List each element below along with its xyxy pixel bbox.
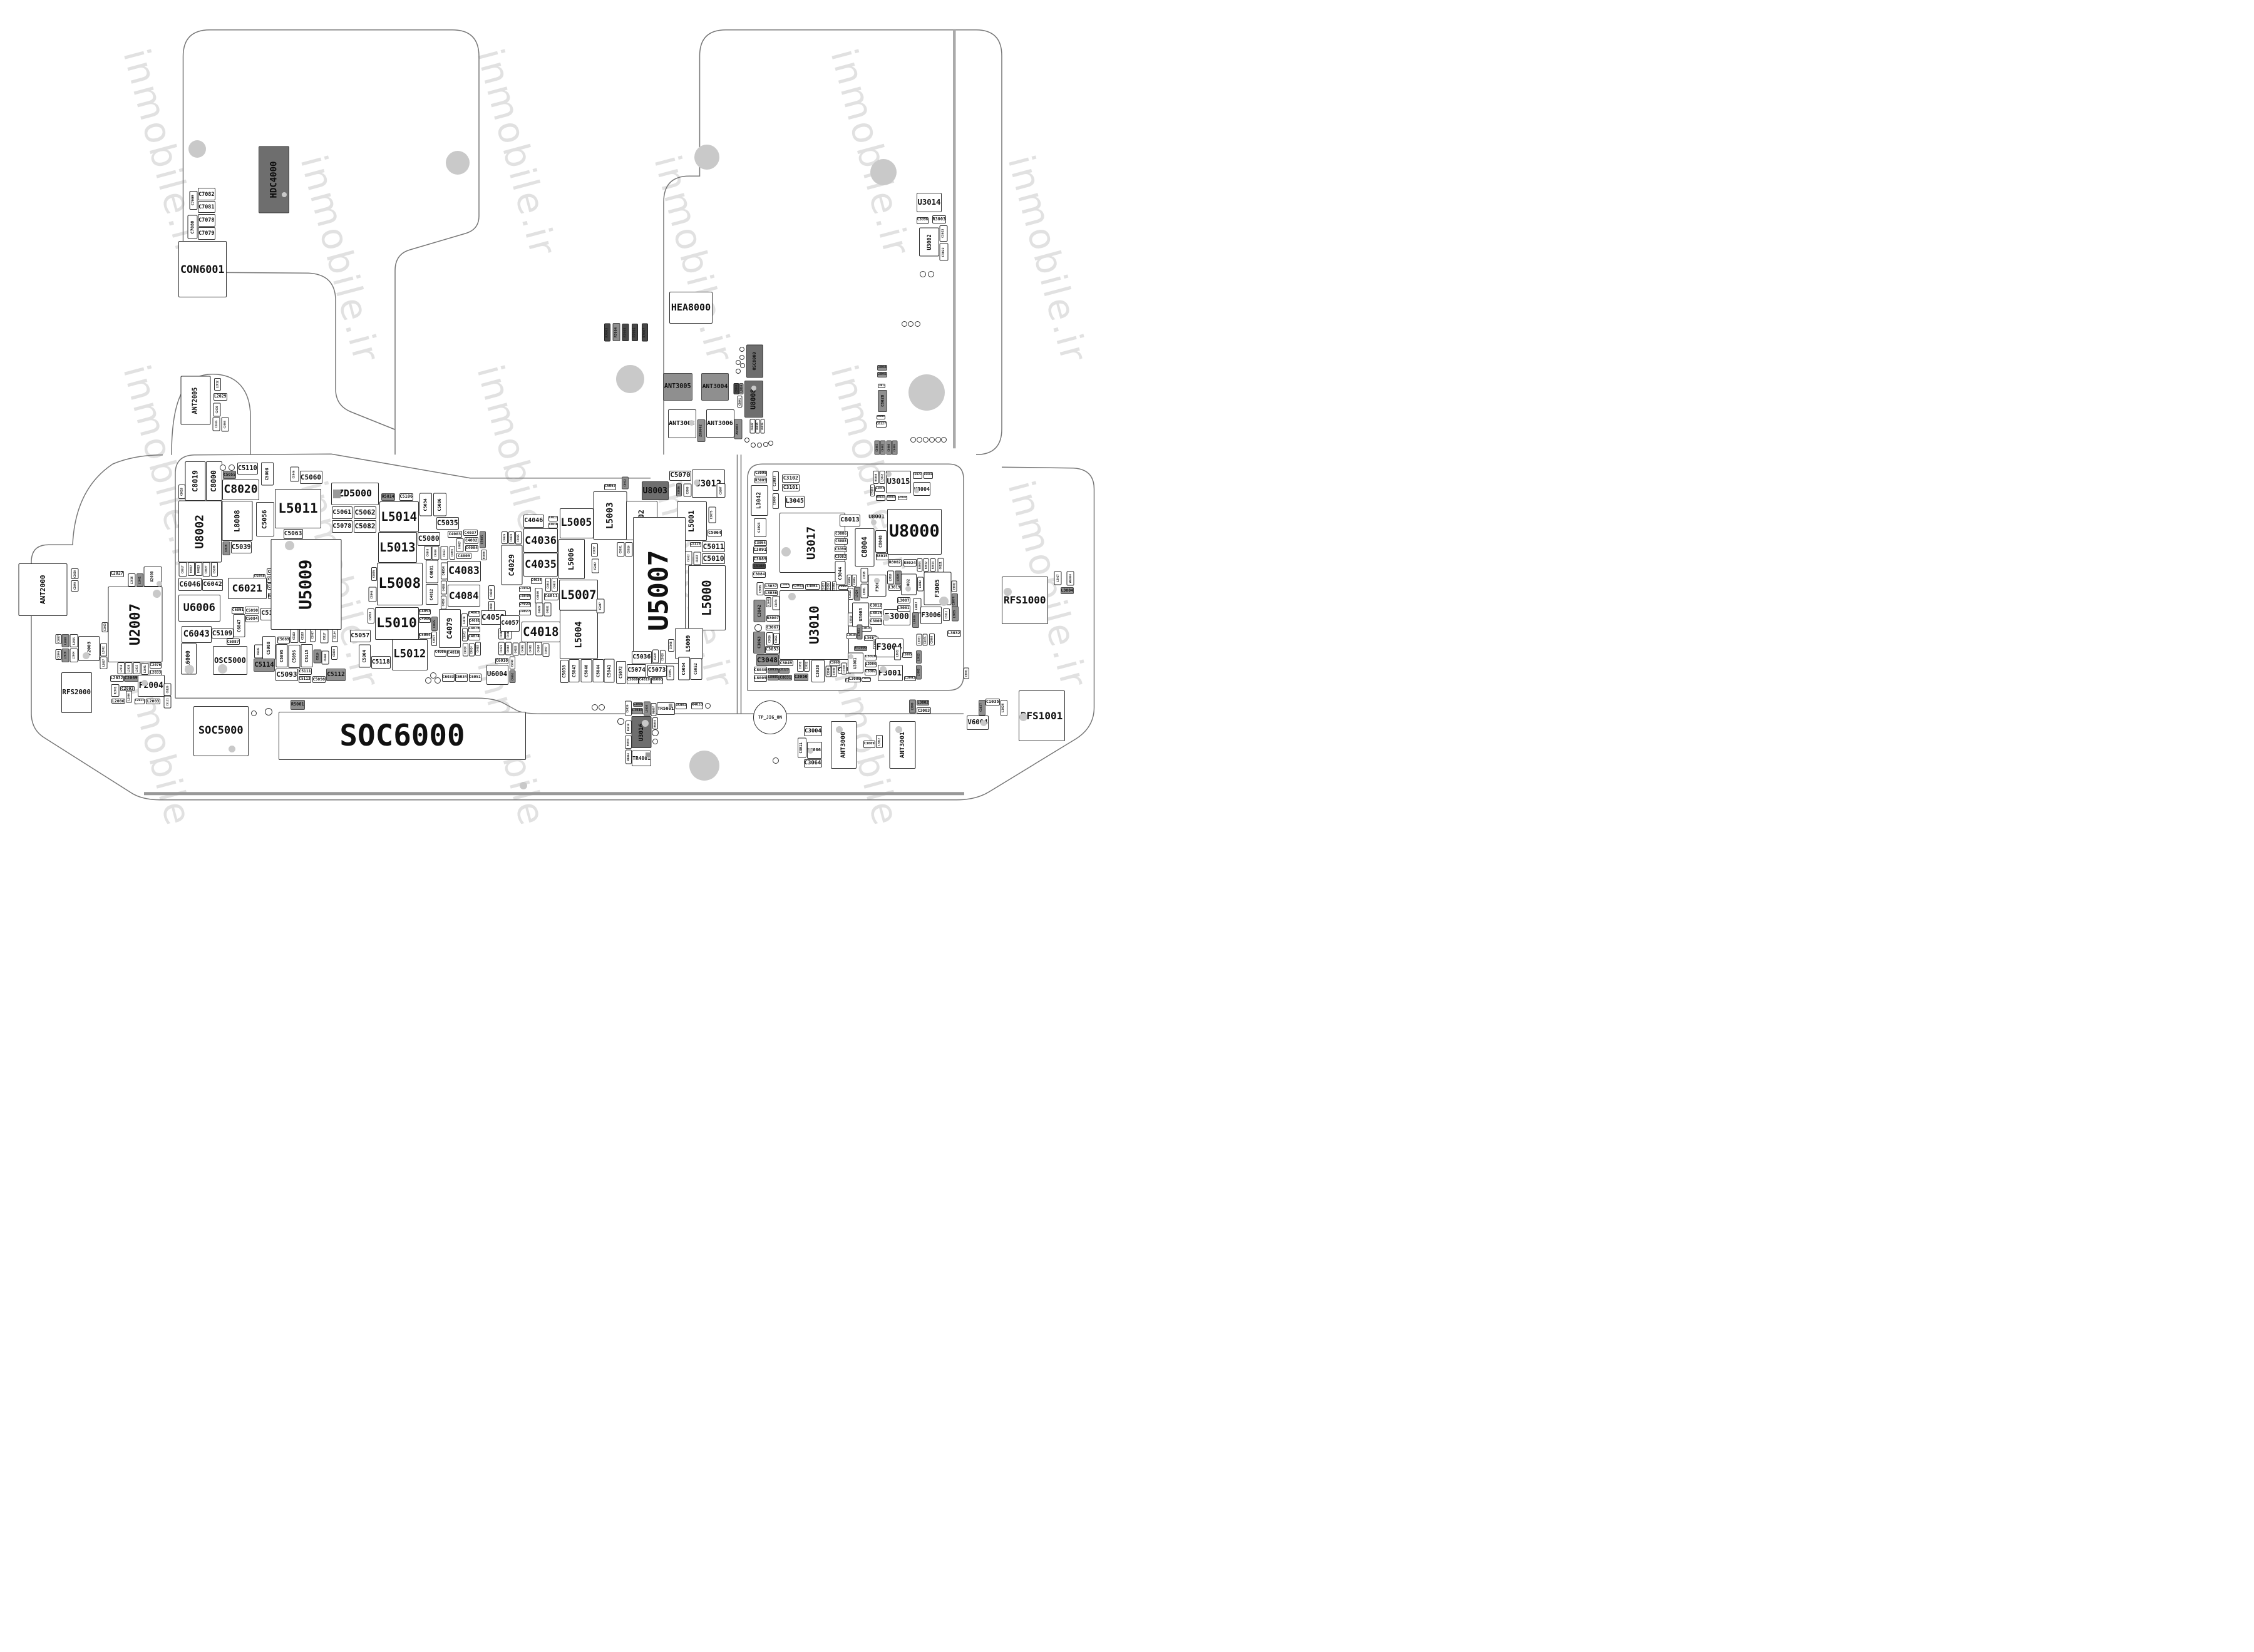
component-l3007: L3007 xyxy=(897,597,910,603)
component-c2076: C2076 xyxy=(150,662,162,669)
component-c4079: C4079 xyxy=(439,609,461,648)
component-c5073: C5073 xyxy=(647,665,667,677)
component-r3007: R3007 xyxy=(766,615,780,622)
component-l3020: L3020 xyxy=(895,571,902,585)
component-layer: HDC4000C7009C7082C7081C7080C7078C7079CON… xyxy=(0,0,1127,826)
component-c3076: C3076 xyxy=(757,582,764,595)
component-l5010: L5010 xyxy=(375,607,419,640)
component-r6005: R6005 xyxy=(652,717,658,729)
component-r5002: R5002 xyxy=(676,703,687,709)
component-c3064: C3064 xyxy=(804,759,822,768)
component-l3036: L3036 xyxy=(764,590,778,597)
component-c4019: C4019 xyxy=(639,677,651,684)
component-c4076: C4076 xyxy=(468,627,480,633)
component-c5046: C5046 xyxy=(291,467,299,482)
component-c4064: C4064 xyxy=(505,642,512,655)
component-l3030: L3030 xyxy=(912,612,919,628)
component-c4046: C4046 xyxy=(523,515,544,528)
component-c3044: C3044 xyxy=(835,562,846,585)
test-point xyxy=(652,729,659,736)
component-c4024: C4024 xyxy=(469,644,475,657)
component-c2069: C2069 xyxy=(124,675,138,682)
component-u8002: U8002 xyxy=(178,501,222,563)
component-c8031: C8031 xyxy=(779,675,792,680)
component-l2016: L2016 xyxy=(128,573,136,587)
component-c8127: C8127 xyxy=(876,421,887,428)
component-c5037: C5037 xyxy=(591,543,598,557)
test-point xyxy=(917,437,922,443)
component-c4094: C4094 xyxy=(535,642,542,655)
component-c3039: C3039 xyxy=(831,666,837,677)
component-c3053: C3053 xyxy=(765,646,780,654)
component-c4021: C4021 xyxy=(498,642,505,655)
component-c5115: C5115 xyxy=(301,644,313,667)
component-c5067: C5067 xyxy=(604,484,616,490)
component-c5111: C5111 xyxy=(299,668,312,675)
test-point xyxy=(923,437,929,443)
component-c4016: C4016 xyxy=(548,523,558,528)
solder-pad xyxy=(871,520,877,525)
component-c5038: C5038 xyxy=(560,660,569,683)
component-l3019: L3019 xyxy=(888,585,901,591)
component-c4038: C4038 xyxy=(519,594,531,600)
component-c8045: C8045 xyxy=(877,372,887,377)
test-point xyxy=(744,438,749,443)
component-c8009: C8009 xyxy=(877,415,885,420)
component-c4029: C4029 xyxy=(502,545,523,585)
component-l3001: L3001 xyxy=(897,605,910,612)
test-point xyxy=(920,271,926,277)
component-c1035: C1035 xyxy=(985,699,1000,706)
component-l3044: L3044 xyxy=(875,486,885,493)
component-r2001: R2001 xyxy=(111,684,120,697)
test-point xyxy=(652,739,658,744)
component-l3011: L3011 xyxy=(861,584,868,598)
component-r7007: R7007 xyxy=(642,324,648,342)
component-l2027: L2027 xyxy=(100,657,108,669)
component-c5109: C5109 xyxy=(212,628,234,639)
component-c2020: C2020 xyxy=(71,568,79,579)
component-l3018: L3018 xyxy=(861,568,868,583)
component-u6004: U6004 xyxy=(486,665,508,685)
component-c6035: C6035 xyxy=(254,645,263,659)
component-c5039: C5039 xyxy=(231,541,252,553)
component-l2020: L2020 xyxy=(62,649,69,662)
component-zd3002: ZD3002 xyxy=(697,419,706,442)
component-c5080: C5080 xyxy=(418,532,441,546)
component-l5003: L5003 xyxy=(594,491,627,540)
component-r3003: R3003 xyxy=(932,215,947,223)
component-c4073: C4073 xyxy=(462,628,468,642)
component-l5008: L5008 xyxy=(377,563,423,605)
component-c5113: C5113 xyxy=(299,676,311,683)
component-c4011: C4011 xyxy=(544,593,558,601)
component-c3004: C3004 xyxy=(804,726,822,736)
component-rfs2000: RFS2000 xyxy=(61,672,93,713)
component-c8027: C8027 xyxy=(203,562,210,577)
component-c3079: C3079 xyxy=(773,597,780,610)
test-point xyxy=(941,437,947,443)
component-c3095: C3095 xyxy=(633,702,643,707)
component-r8012: R8012 xyxy=(924,558,929,572)
solder-pad xyxy=(914,488,919,493)
solder-pad xyxy=(848,654,853,659)
test-point xyxy=(929,437,935,443)
component-c5049: C5049 xyxy=(510,657,515,670)
test-point xyxy=(739,347,744,352)
test-point xyxy=(425,677,431,684)
test-point xyxy=(928,271,934,277)
component-c3096: C3096 xyxy=(917,217,929,224)
component-c7081: C7081 xyxy=(198,201,215,213)
component-r6010: R6010 xyxy=(625,721,632,734)
component-c5106: C5106 xyxy=(399,493,414,501)
component-c6033: C6033 xyxy=(442,674,455,682)
component-c3068: C3068 xyxy=(929,634,935,645)
component-c4057: C4057 xyxy=(500,615,520,632)
component-c5027: C5027 xyxy=(652,650,659,664)
component-r8004: R8004 xyxy=(917,558,923,572)
component-l8004: L8004 xyxy=(739,383,744,394)
solder-pad xyxy=(689,420,694,426)
component-c4054: C4054 xyxy=(441,563,448,580)
component-c5011: C5011 xyxy=(702,541,725,552)
component-c8002: C8002 xyxy=(880,441,886,455)
component-l3035: L3035 xyxy=(952,607,959,622)
component-u8001: U8001 xyxy=(867,515,886,521)
component-c4062: C4062 xyxy=(510,670,516,683)
component-l5009: L5009 xyxy=(675,628,703,659)
component-c5099: C5099 xyxy=(331,646,337,660)
component-c5121: C5121 xyxy=(164,696,172,709)
component-c5076: C5076 xyxy=(371,567,377,581)
component-c3067: C3067 xyxy=(766,625,780,630)
test-point xyxy=(229,464,235,471)
component-c8005: C8005 xyxy=(892,441,898,455)
component-c3020: C3020 xyxy=(898,496,907,500)
component-c4084: C4084 xyxy=(465,545,479,552)
component-u5009: U5009 xyxy=(271,539,342,630)
component-l2018: L2018 xyxy=(118,662,125,674)
component-c4035: C4035 xyxy=(523,553,558,577)
component-c7080: C7080 xyxy=(188,215,198,239)
component-c6034: C6034 xyxy=(455,674,468,682)
component-r3008: R3008 xyxy=(873,471,879,484)
solder-pad xyxy=(142,680,148,686)
component-c2031: C2031 xyxy=(135,699,145,705)
component-c8048: C8048 xyxy=(875,530,887,553)
component-l3032: L3032 xyxy=(947,630,962,637)
test-point xyxy=(740,363,745,368)
component-c3001: C3001 xyxy=(964,668,969,679)
component-c4025: C4025 xyxy=(515,531,522,545)
component-l2003: L2003 xyxy=(146,699,160,705)
component-c3082: C3082 xyxy=(835,554,847,560)
component-c3007: C3007 xyxy=(717,483,726,498)
component-c8003: C8003 xyxy=(875,441,880,455)
component-c4010: C4010 xyxy=(447,650,460,657)
solder-pad xyxy=(751,386,756,391)
test-point xyxy=(265,708,272,716)
component-l3045: L3045 xyxy=(785,496,805,508)
component-c8041: C8041 xyxy=(738,396,743,408)
solder-pad xyxy=(980,720,987,726)
component-c4002: C4002 xyxy=(465,537,479,544)
component-l3002: L3002 xyxy=(917,700,929,705)
component-c4050: C4050 xyxy=(432,546,440,560)
component-c2063: C2063 xyxy=(102,622,108,632)
component-c4040: C4040 xyxy=(535,588,543,603)
component-c2057: C2057 xyxy=(56,634,62,644)
solder-pad xyxy=(886,471,892,477)
component-c5041: C5041 xyxy=(604,659,615,683)
component-c4093: C4093 xyxy=(475,642,481,656)
test-point xyxy=(751,443,756,448)
component-c4026: C4026 xyxy=(502,531,508,544)
component-l3010: L3010 xyxy=(887,571,894,585)
component-c2030: C2030 xyxy=(214,403,221,417)
component-l1026: L1026 xyxy=(1001,700,1007,716)
solder-pad xyxy=(642,720,649,727)
component-r6004: R6004 xyxy=(625,736,632,749)
solder-pad xyxy=(1004,588,1012,596)
component-c5054: C5054 xyxy=(678,657,690,680)
test-point xyxy=(763,442,768,447)
solder-pad xyxy=(908,374,945,411)
component-ant3004: ANT3004 xyxy=(701,373,729,401)
component-c5008: C5008 xyxy=(261,463,274,486)
pcb-layout-canvas: inmobile.irinmobile.irinmobile.irinmobil… xyxy=(0,0,1127,826)
solder-pad xyxy=(788,593,796,600)
component-c5078: C5078 xyxy=(332,520,353,533)
component-c3103: C3103 xyxy=(870,485,875,496)
component-c8020: C8020 xyxy=(222,480,259,500)
solder-pad xyxy=(185,665,194,674)
component-c3048: C3048 xyxy=(756,654,779,666)
component-c3111: C3111 xyxy=(943,608,950,621)
component-c3093: C3093 xyxy=(754,518,766,537)
component-l2026: L2026 xyxy=(125,662,133,674)
test-point xyxy=(435,677,441,684)
component-l8013: L8013 xyxy=(878,384,885,389)
component-u3014: U3014 xyxy=(917,193,942,212)
component-r7004: R7004 xyxy=(613,323,620,341)
component-r8015: R8015 xyxy=(876,553,888,560)
component-c5116: C5116 xyxy=(314,650,322,664)
component-rfs1000: RFS1000 xyxy=(1002,577,1048,624)
component-c5036: C5036 xyxy=(632,651,652,664)
component-l3031: L3031 xyxy=(917,634,922,646)
component-c5112: C5112 xyxy=(326,669,346,681)
component-c3094: C3094 xyxy=(754,540,767,546)
test-point xyxy=(617,718,624,725)
component-c3042: C3042 xyxy=(754,600,766,622)
component-c4083: C4083 xyxy=(447,561,481,582)
component-r8014: R8014 xyxy=(930,558,936,572)
component-c4055: C4055 xyxy=(441,581,447,595)
component-c5029: C5029 xyxy=(660,650,666,664)
component-c8018: C8018 xyxy=(178,485,185,499)
component-c8046: C8046 xyxy=(734,383,739,394)
component-c8125: C8125 xyxy=(779,668,790,674)
component-r8024: R8024 xyxy=(903,559,917,567)
component-c4005: C4005 xyxy=(450,546,455,560)
component-r4044: R4044 xyxy=(625,750,632,764)
test-point xyxy=(768,441,773,446)
component-c3060: C3060 xyxy=(830,660,840,666)
component-c4085: C4085 xyxy=(468,611,480,617)
component-c4036: C4036 xyxy=(523,528,558,553)
solder-pad xyxy=(218,664,227,674)
component-f2004: F2004 xyxy=(138,675,165,697)
component-hdc4000: HDC4000 xyxy=(259,146,289,213)
component-c3051: C3051 xyxy=(797,659,804,672)
component-u3010: U3010 xyxy=(780,590,849,660)
component-u6006: U6006 xyxy=(178,595,220,622)
component-c5120: C5120 xyxy=(164,684,172,696)
solder-pad xyxy=(229,746,235,752)
component-c8019: C8019 xyxy=(185,461,206,501)
component-c8026: C8026 xyxy=(223,541,230,555)
component-r5000: R5000 xyxy=(481,550,487,560)
component-l3008: L3008 xyxy=(909,700,916,714)
test-point xyxy=(757,443,762,448)
solder-pad xyxy=(883,614,890,621)
component-l2028: L2028 xyxy=(62,634,69,647)
component-c4042: C4042 xyxy=(519,587,531,592)
component-c5057: C5057 xyxy=(350,630,371,642)
component-l2029: L2029 xyxy=(214,393,227,401)
component-c5118: C5118 xyxy=(371,656,391,669)
component-c4027: C4027 xyxy=(519,610,531,615)
component-l3006: L3006 xyxy=(865,662,877,667)
component-l5004: L5004 xyxy=(560,610,598,659)
test-point xyxy=(915,321,920,327)
component-c5086: C5086 xyxy=(433,493,446,516)
component-r4022: R4022 xyxy=(188,562,195,576)
component-c7078: C7078 xyxy=(198,214,215,227)
component-l5005: L5005 xyxy=(560,508,594,538)
test-point xyxy=(736,369,741,374)
component-c4084: C4084 xyxy=(448,585,480,607)
component-c3055: C3055 xyxy=(773,633,780,645)
component-c3063: C3063 xyxy=(753,632,765,654)
component-c8032: C8032 xyxy=(622,477,629,490)
polarity-mark xyxy=(646,752,650,757)
component-c6010: C6010 xyxy=(495,658,508,664)
solder-pad xyxy=(616,365,644,393)
component-c8036: C8036 xyxy=(676,483,682,496)
component-l3023: L3023 xyxy=(916,650,922,664)
component-c3089: C3089 xyxy=(753,556,768,563)
component-c5097: C5097 xyxy=(310,628,316,642)
component-c5103: C5103 xyxy=(299,629,306,643)
component-r4033: R4033 xyxy=(691,702,703,709)
component-l5006: L5006 xyxy=(558,539,585,579)
component-c3091: C3091 xyxy=(753,546,768,554)
solder-pad xyxy=(689,751,719,781)
component-c3022: C3022 xyxy=(940,244,949,261)
component-c5087: C5087 xyxy=(227,639,240,645)
component-c3003: C3003 xyxy=(917,707,931,714)
component-c4056: C4056 xyxy=(441,596,446,610)
component-c5070: C5070 xyxy=(669,471,691,481)
component-c8030: C8030 xyxy=(754,667,768,674)
component-c6036: C6036 xyxy=(625,701,632,716)
component-c3098: C3098 xyxy=(754,471,767,476)
polarity-mark xyxy=(669,704,673,708)
test-point xyxy=(705,703,711,709)
component-con6001: CON6001 xyxy=(178,241,227,297)
component-c5095: C5095 xyxy=(276,644,288,667)
component-c3012: C3012 xyxy=(870,603,882,609)
component-c3032: C3032 xyxy=(952,581,957,592)
component-l3043: L3043 xyxy=(880,471,885,484)
component-c3075: C3075 xyxy=(923,634,928,646)
component-l2032: L2032 xyxy=(110,675,124,682)
component-l3027: L3027 xyxy=(1054,572,1062,585)
component-c3050: C3050 xyxy=(794,674,809,682)
component-c4032: C4032 xyxy=(544,603,552,617)
component-c4007: C4007 xyxy=(456,538,464,552)
component-r3002: R3002 xyxy=(792,584,804,590)
component-c6043: C6043 xyxy=(182,626,212,643)
component-c3043: C3043 xyxy=(766,597,771,607)
component-c4018: C4018 xyxy=(522,622,561,642)
component-l8008: L8008 xyxy=(222,501,253,541)
component-r7006: R7006 xyxy=(632,324,638,341)
component-c5108: C5108 xyxy=(211,562,218,577)
component-c5114: C5114 xyxy=(254,659,275,672)
component-l3042: L3042 xyxy=(751,485,768,516)
component-c5066: C5066 xyxy=(668,639,674,652)
component-ant3005: ANT3005 xyxy=(663,373,692,401)
component-r6007: R6007 xyxy=(651,703,657,716)
component-c5042: C5042 xyxy=(592,559,599,573)
component-l3021: L3021 xyxy=(857,625,863,640)
component-c3016: C3016 xyxy=(841,663,847,675)
component-ant3000: ANT3000 xyxy=(831,721,857,769)
solder-pad xyxy=(188,140,206,158)
component-c3000: C3000 xyxy=(870,618,882,625)
component-c5063: C5063 xyxy=(284,529,303,539)
component-c5017: C5017 xyxy=(694,552,701,565)
solder-pad xyxy=(1019,713,1027,721)
component-c5034: C5034 xyxy=(419,493,432,516)
component-c2004: C2004 xyxy=(222,418,229,432)
component-c4048: C4048 xyxy=(425,546,432,560)
solder-pad xyxy=(836,726,843,733)
solder-pad xyxy=(880,666,887,673)
component-c5064: C5064 xyxy=(708,530,722,537)
component-c3084: C3084 xyxy=(753,572,766,578)
component-c5102: C5102 xyxy=(291,629,299,643)
component-l8016: L8016 xyxy=(756,419,760,434)
jig-test-point: TP_JIG_ON xyxy=(753,700,787,734)
test-point xyxy=(251,711,257,716)
component-c4075: C4075 xyxy=(431,617,438,631)
component-r7005: R7005 xyxy=(622,324,629,341)
component-l3037: L3037 xyxy=(764,583,778,590)
component-c4095: C4095 xyxy=(520,642,526,655)
component-c5061: C5061 xyxy=(332,506,353,519)
component-ant2000: ANT2000 xyxy=(19,563,68,616)
component-l3005: L3005 xyxy=(916,665,922,680)
component-osc8000: OSC8000 xyxy=(746,345,763,378)
component-c5092: C5092 xyxy=(322,651,329,665)
component-c3023: C3023 xyxy=(940,225,948,242)
component-l3012: L3012 xyxy=(876,735,883,748)
